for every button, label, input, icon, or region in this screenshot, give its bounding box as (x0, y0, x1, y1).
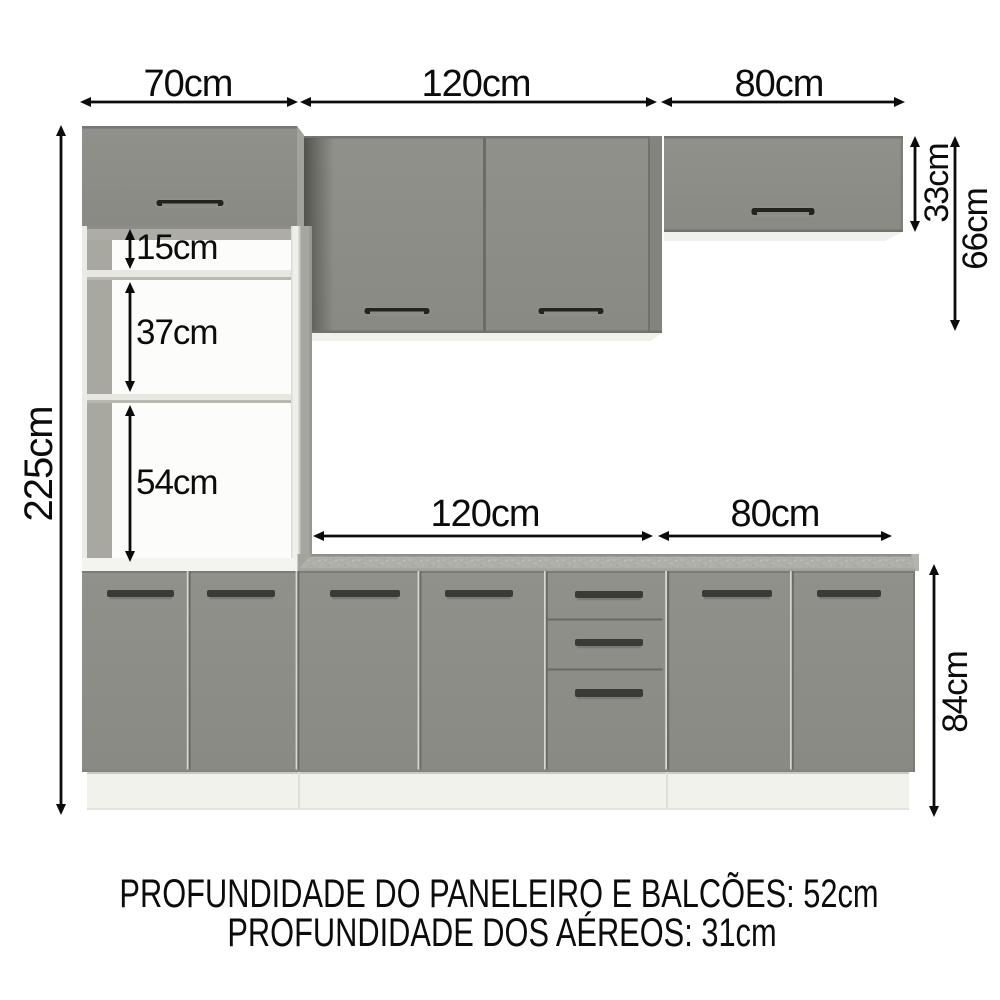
svg-text:84cm: 84cm (936, 651, 975, 733)
svg-text:33cm: 33cm (918, 143, 956, 222)
svg-text:70cm: 70cm (144, 63, 233, 105)
svg-text:PROFUNDIDADE DOS AÉREOS: 31cm: PROFUNDIDADE DOS AÉREOS: 31cm (227, 910, 776, 955)
svg-text:37cm: 37cm (136, 313, 218, 352)
svg-text:15cm: 15cm (136, 228, 218, 267)
svg-text:80cm: 80cm (735, 63, 824, 105)
svg-text:54cm: 54cm (136, 463, 218, 502)
svg-text:225cm: 225cm (17, 406, 61, 521)
svg-text:120cm: 120cm (421, 63, 530, 105)
svg-text:80cm: 80cm (731, 493, 820, 535)
svg-text:66cm: 66cm (956, 188, 995, 270)
svg-text:120cm: 120cm (430, 493, 539, 535)
